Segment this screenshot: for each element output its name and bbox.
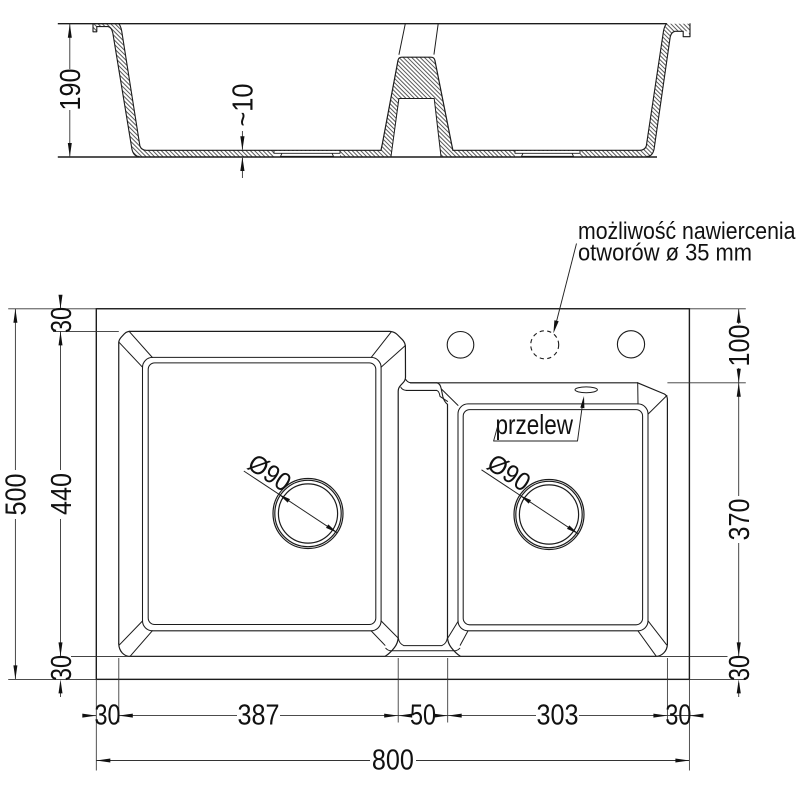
svg-text:otworów ø 35 mm: otworów ø 35 mm — [578, 240, 752, 267]
svg-text:190: 190 — [55, 69, 87, 111]
svg-text:~10: ~10 — [228, 84, 260, 127]
svg-text:30: 30 — [665, 699, 691, 731]
svg-text:370: 370 — [724, 499, 756, 541]
svg-text:440: 440 — [46, 473, 78, 515]
svg-text:30: 30 — [724, 655, 756, 681]
svg-text:100: 100 — [724, 325, 756, 367]
svg-text:387: 387 — [238, 699, 280, 731]
svg-text:50: 50 — [410, 699, 436, 731]
svg-text:30: 30 — [95, 699, 121, 731]
svg-text:30: 30 — [46, 655, 78, 681]
svg-text:500: 500 — [1, 474, 33, 516]
svg-text:30: 30 — [46, 307, 78, 333]
svg-text:przelew: przelew — [496, 409, 574, 440]
svg-text:800: 800 — [372, 745, 414, 777]
svg-text:303: 303 — [537, 699, 579, 731]
